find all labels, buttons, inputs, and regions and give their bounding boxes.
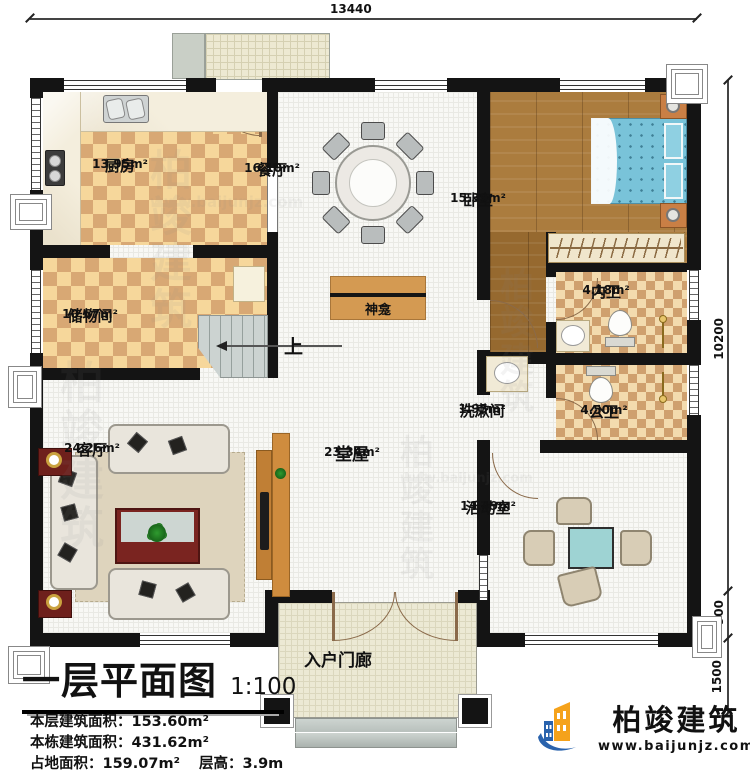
info-row: 本层建筑面积：153.60m² (30, 712, 283, 733)
dimension-right-bottom-label: 1500 (710, 660, 724, 693)
brand-name: 柏竣建筑 (598, 697, 750, 739)
rear-stoop-platform (205, 33, 330, 80)
facade-pilaster (692, 616, 722, 658)
room-area: 15.39m² (450, 192, 506, 206)
info-row: 占地面积：159.07m² 层高：3.9m (30, 754, 283, 770)
towel-bar-knob (659, 315, 667, 323)
tv (260, 492, 269, 550)
activity-chair (620, 530, 652, 566)
wall-segment (267, 258, 278, 378)
stove-burner (49, 170, 61, 182)
inner-bath-toilet-tank (605, 337, 635, 347)
dining-chair (361, 122, 385, 140)
wall-segment (477, 440, 490, 453)
stove-burner (49, 155, 61, 167)
brand-text: 柏竣建筑 www.baijunjz.com (598, 697, 750, 754)
room-area: 1.95m² (458, 403, 505, 417)
washroom-sink (494, 362, 520, 384)
entry-door-leaf (332, 592, 335, 641)
wall-segment (447, 78, 560, 92)
dining-table-center (349, 159, 397, 207)
activity-chair (556, 497, 592, 525)
bed-pillow (664, 163, 683, 199)
shrine-label: 神龛 (330, 299, 426, 317)
storage-cabinet (233, 266, 265, 302)
sofa-bottom (108, 568, 230, 620)
wall-segment (687, 415, 701, 647)
page-title: 一层平面图 (22, 659, 217, 703)
dimension-line-top (30, 18, 697, 20)
entry-door-leaf (455, 592, 458, 641)
title-block: 一层平面图 1:100 (22, 650, 284, 714)
dimension-right-label: 10200 (712, 318, 726, 360)
info-label: 占地面积： (30, 756, 103, 770)
wall-segment (546, 263, 687, 272)
wall-segment (262, 78, 375, 92)
plant (275, 468, 286, 479)
nightstand-lamp (666, 208, 680, 222)
stairs-direction-line (222, 345, 342, 347)
wall-segment (546, 322, 556, 353)
brand-logo: 柏竣建筑 www.baijunjz.com (530, 690, 740, 760)
room-name: 入户门廊 (304, 652, 372, 672)
dimension-line-right (727, 80, 729, 713)
wall-segment (265, 590, 278, 647)
wall-segment (186, 78, 216, 92)
inner-bath-sink (561, 325, 585, 346)
window (31, 270, 41, 353)
wall-segment (30, 78, 43, 98)
public-bath-toilet-tank (586, 366, 616, 376)
porch-steps (295, 718, 457, 748)
wall-segment (267, 92, 278, 168)
window (689, 365, 699, 415)
porch-column (462, 698, 488, 724)
wall-segment (687, 78, 701, 270)
room-area: 23.34m² (324, 446, 380, 460)
table-lamp (46, 452, 62, 468)
dining-chair (312, 171, 330, 195)
window (140, 635, 230, 645)
info-value: 159.07m² (103, 756, 180, 770)
shrine-divider (330, 293, 426, 297)
wall-segment (546, 353, 687, 365)
room-area: 16.10m² (244, 162, 300, 176)
window (479, 555, 488, 600)
window (560, 80, 645, 90)
facade-pilaster (8, 366, 42, 408)
window (64, 80, 186, 90)
wall-segment (477, 600, 490, 647)
dining-chair (416, 171, 434, 195)
info-value: 3.9m (242, 756, 283, 770)
dining-chair (361, 226, 385, 244)
brand-website: www.baijunjz.com (598, 739, 750, 754)
info-label: 本栋建筑面积： (30, 735, 132, 751)
wall-segment (458, 590, 477, 603)
wall-segment (30, 368, 200, 380)
inner-bath-toilet (608, 310, 632, 336)
wall-segment (687, 320, 701, 365)
bed-pillow (664, 123, 683, 159)
info-label: 本层建筑面积： (30, 714, 132, 730)
activity-table (568, 527, 614, 569)
window (525, 635, 658, 645)
facade-pilaster (666, 64, 708, 104)
window (31, 98, 41, 190)
stairs-arrow (216, 341, 227, 351)
wall-segment (546, 365, 556, 398)
room-area: 13.95m² (92, 158, 148, 172)
info-label: 层高： (199, 756, 243, 770)
wardrobe-rail (550, 247, 683, 249)
bed-sheet (591, 118, 617, 204)
facade-pilaster (10, 194, 52, 230)
public-bath-toilet (589, 377, 613, 403)
info-block: 本层建筑面积：153.60m² 本栋建筑面积：431.62m² 占地面积：159… (30, 712, 283, 770)
room-area: 14.49m² (460, 500, 516, 514)
porch-step-divider (295, 732, 457, 733)
wall-segment (193, 245, 278, 258)
plant (148, 524, 166, 542)
stairs-up-label: 上 (284, 332, 303, 359)
info-row: 本栋建筑面积：431.62m² (30, 733, 283, 754)
wall-segment (540, 440, 687, 453)
tv-backdrop-panel (272, 433, 290, 597)
room-area: 10.67m² (62, 308, 118, 322)
room-area: 4.18m² (582, 284, 629, 298)
table-lamp (46, 594, 62, 610)
activity-chair (523, 530, 555, 566)
wall-segment (30, 633, 140, 647)
towel-bar-knob (659, 395, 667, 403)
page-scale: 1:100 (230, 674, 296, 700)
kitchen-tile (79, 130, 267, 245)
towel-bar (662, 322, 664, 348)
rear-stoop-step (172, 33, 205, 79)
room-area: 24.26m² (64, 442, 120, 456)
dimension-top-label: 13440 (330, 2, 372, 16)
window (689, 270, 699, 320)
sofa-top (108, 424, 230, 474)
window (375, 80, 447, 90)
wall-segment (43, 245, 110, 258)
info-value: 431.62m² (132, 735, 209, 751)
brand-logo-icon (530, 695, 590, 755)
floor-plan: 13440 10200 900 1500 (0, 0, 750, 770)
info-value: 153.60m² (132, 714, 209, 730)
room-area: 4.50m² (580, 404, 627, 418)
